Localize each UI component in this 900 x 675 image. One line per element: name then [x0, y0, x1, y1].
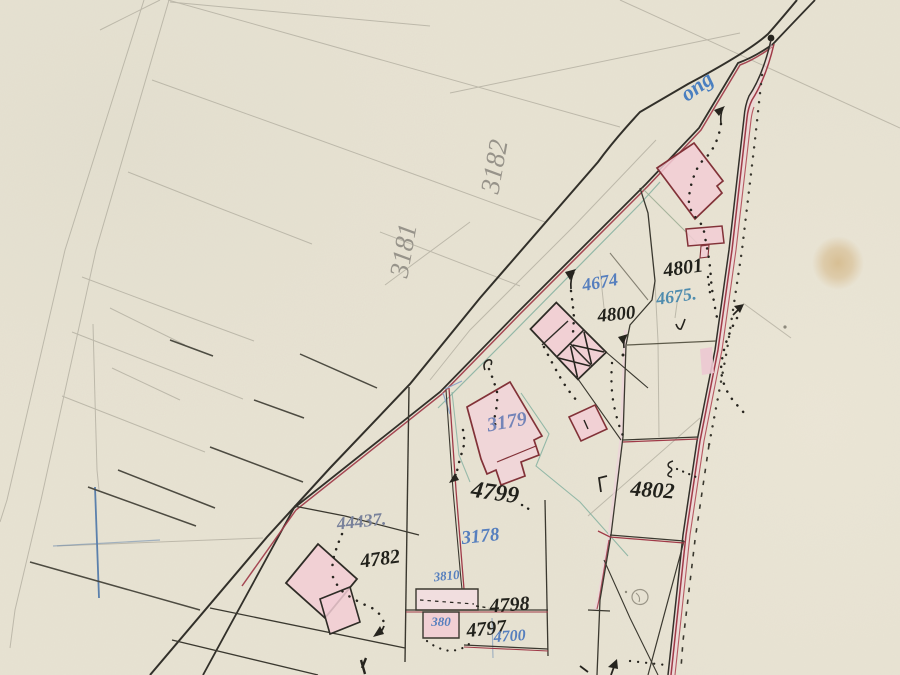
svg-text:3178: 3178 — [459, 524, 500, 549]
svg-text:4802: 4802 — [629, 475, 676, 503]
svg-text:4700: 4700 — [492, 627, 526, 646]
svg-text:4798: 4798 — [488, 593, 530, 618]
svg-text:3810: 3810 — [432, 567, 461, 585]
svg-text:4800: 4800 — [595, 302, 636, 327]
svg-text:380: 380 — [430, 614, 451, 629]
